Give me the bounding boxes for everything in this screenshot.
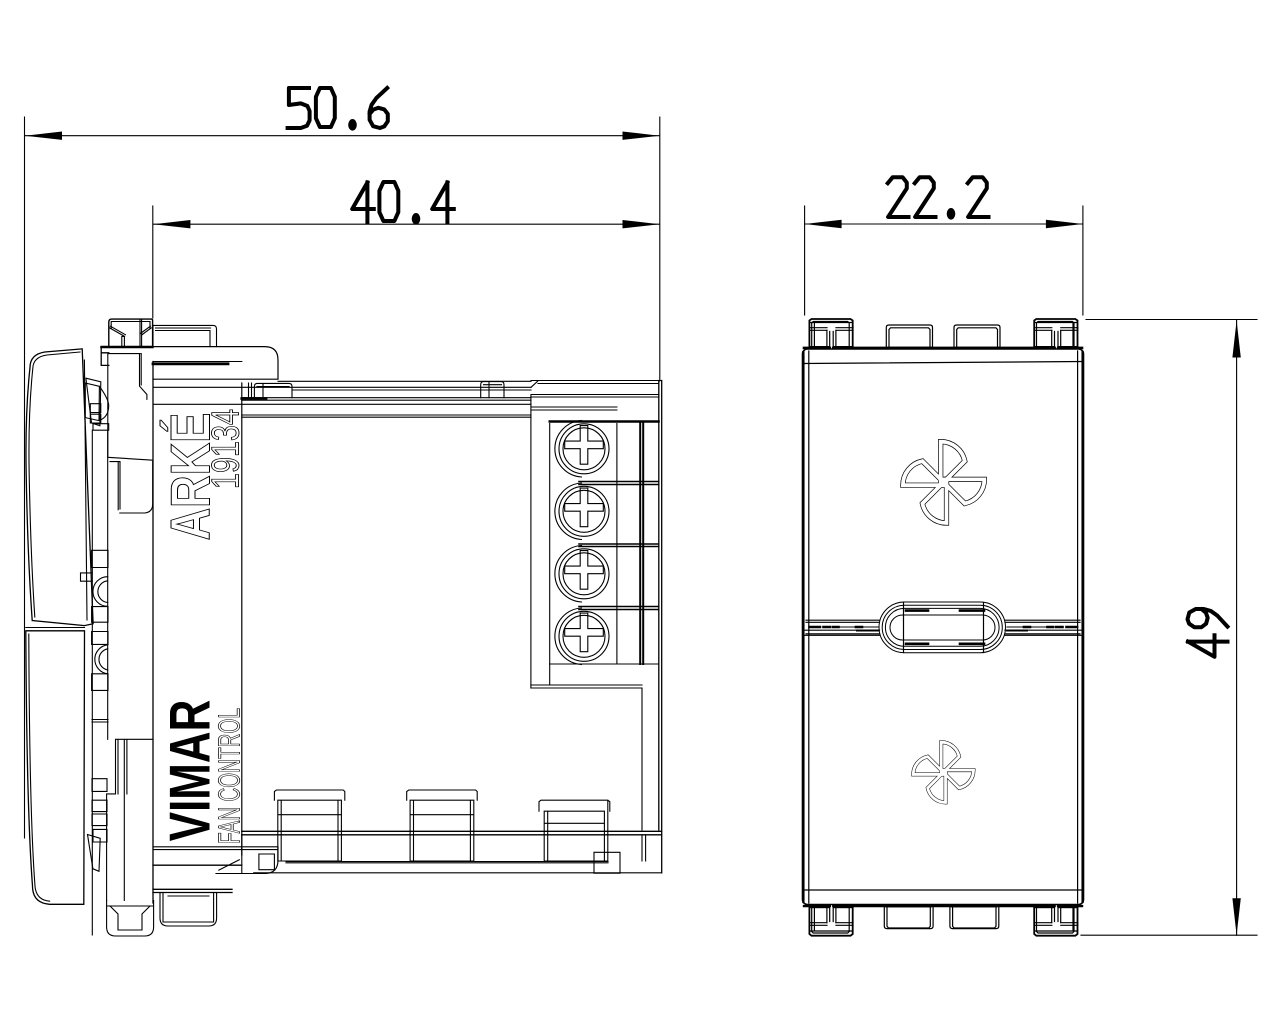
svg-text:19134: 19134 xyxy=(204,409,247,489)
svg-text:FAN CONTROL: FAN CONTROL xyxy=(213,708,247,844)
